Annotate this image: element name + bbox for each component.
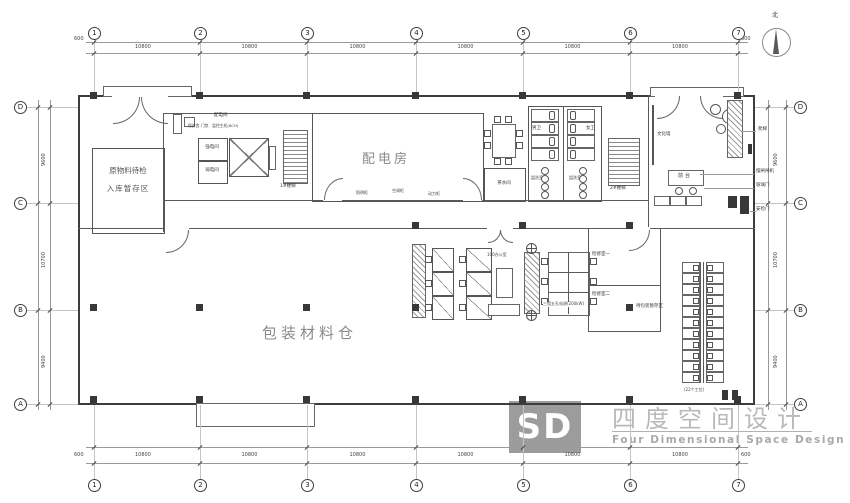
toilet-icon (549, 124, 555, 133)
column (196, 92, 203, 99)
workstation-cell (706, 328, 724, 339)
ac-cabinet-label: 空调柜 (392, 189, 404, 194)
workstation-cell (682, 295, 700, 306)
door-swing (166, 230, 189, 253)
grid-line (755, 404, 794, 405)
dimension-value: 600 (741, 452, 751, 458)
column (519, 92, 526, 99)
culture-wall (652, 105, 654, 165)
workstation-divider (703, 262, 704, 383)
chair-icon (707, 287, 713, 293)
grid-bubble: D (14, 101, 27, 114)
fan-icon (526, 310, 537, 321)
column (303, 92, 310, 99)
raw-material-label-2: 入库暂存区 (99, 184, 157, 193)
chair-icon (459, 280, 466, 287)
security-door-frame (740, 196, 749, 214)
dimension-value: 10800 (458, 44, 474, 50)
reserved-power-label: 三相五孔电源(200kW) (543, 302, 584, 307)
door-swing (629, 230, 650, 251)
washbasin-icon (541, 183, 549, 191)
stool-icon (689, 187, 697, 195)
grid-line (26, 404, 78, 405)
inspection-room-1-label: 检修室一 (592, 252, 610, 257)
column (90, 304, 97, 311)
grid-bubble: 1 (88, 27, 101, 40)
washbasin-icon (579, 183, 587, 191)
grid-line (630, 39, 631, 95)
door-swing (657, 96, 680, 119)
chair-icon (693, 309, 699, 315)
chair-icon (590, 278, 597, 285)
stair-1 (283, 130, 308, 184)
toilet-icon (570, 137, 576, 146)
workstation-cell (706, 350, 724, 361)
studio-logo: SD (509, 401, 581, 453)
turnstile-unit (686, 196, 702, 206)
chair-icon (693, 276, 699, 282)
turnstile-unit (670, 196, 686, 206)
grid-line (523, 405, 524, 479)
grid-line (200, 405, 201, 479)
tea-room-label: 茶水间 (484, 181, 524, 186)
dimension-value: 10800 (135, 452, 151, 458)
turnstile-unit (654, 196, 670, 206)
office-label: 100办公室 (487, 253, 507, 258)
chair-icon (425, 280, 432, 287)
fan-icon (526, 243, 537, 254)
column (196, 304, 203, 311)
equipment-cabinet (173, 114, 182, 134)
toilet-icon (570, 111, 576, 120)
wall (588, 331, 660, 332)
grid-bubble: 6 (624, 479, 637, 492)
dimension-value: 600 (74, 452, 84, 458)
chair-icon (707, 309, 713, 315)
chair-icon (693, 298, 699, 304)
column (412, 222, 419, 229)
column (196, 396, 203, 403)
column (90, 92, 97, 99)
chair-icon (693, 287, 699, 293)
chair-icon (693, 364, 699, 370)
dimension-value: 9400 (41, 344, 47, 368)
dimension-value: 9400 (773, 344, 779, 368)
chair-icon (484, 142, 491, 149)
grid-line (94, 405, 95, 479)
wall-device (748, 144, 752, 154)
ladder-label: 爬梯 (758, 127, 767, 132)
chair-icon (494, 158, 501, 165)
toilet-icon (549, 111, 555, 120)
grid-line (26, 107, 78, 108)
chair-icon (516, 130, 523, 137)
cabinet (466, 272, 492, 296)
washbasin-icon (579, 167, 587, 175)
dimension-value: 10800 (458, 452, 474, 458)
chair-icon (693, 320, 699, 326)
workstation-cell (706, 262, 724, 273)
door-swing (488, 230, 501, 243)
column (734, 396, 741, 403)
chair-icon (541, 258, 548, 265)
column (90, 396, 97, 403)
chair-icon (590, 258, 597, 265)
dimension-line (38, 100, 39, 410)
wall (563, 106, 564, 200)
workstation-cell (682, 262, 700, 273)
grid-bubble: 2 (194, 27, 207, 40)
power-cabinet-label: 动力柜 (428, 192, 440, 197)
wall (753, 95, 755, 405)
chair-icon (516, 142, 523, 149)
column (412, 396, 419, 403)
grid-line (755, 107, 794, 108)
workstation-cell (706, 273, 724, 284)
stair-2 (608, 138, 640, 186)
workstation-count-label: (22个工位) (684, 388, 704, 393)
grid-line (94, 39, 95, 95)
column (626, 92, 633, 99)
reception-desk-label: 前台 (668, 173, 702, 179)
workstation-cell (682, 372, 700, 383)
door-swing (113, 97, 140, 124)
security-door-label: 安检门 (756, 207, 770, 212)
workstation-cell (682, 339, 700, 350)
dimension-line (768, 100, 769, 410)
toilet-icon (570, 150, 576, 159)
washbasin-icon (541, 167, 549, 175)
workstation-cell (706, 306, 724, 317)
dimension-value: 10800 (242, 452, 258, 458)
lobby-stool (716, 124, 726, 134)
grid-line (630, 405, 631, 479)
grid-bubble: 7 (732, 479, 745, 492)
grid-bubble: 3 (301, 479, 314, 492)
chair-icon (693, 342, 699, 348)
dimension-value: 10800 (565, 452, 581, 458)
wall (660, 228, 661, 332)
grid-bubble: 7 (732, 27, 745, 40)
column (412, 304, 419, 311)
packing-buffer-label: 待包装暂存区 (636, 304, 663, 309)
grid-line (26, 310, 78, 311)
grid-bubble: 6 (624, 27, 637, 40)
toilet-icon (570, 124, 576, 133)
elevator-door (269, 146, 276, 170)
distribution-bay-label: 配电间 (214, 113, 228, 118)
dimension-value: 10700 (41, 244, 47, 268)
chair-icon (425, 256, 432, 263)
dimension-value: 600 (74, 36, 84, 42)
grid-bubble: 5 (517, 479, 530, 492)
elevator-shaft (229, 138, 269, 177)
lobby-table (710, 104, 721, 115)
strong-electric-label: 强电间 (198, 145, 226, 150)
grid-bubble: 4 (410, 479, 423, 492)
column (626, 222, 633, 229)
grid-line (755, 203, 794, 204)
chair-icon (707, 298, 713, 304)
workstation-cell (706, 295, 724, 306)
chair-icon (693, 265, 699, 271)
grid-bubble: C (794, 197, 807, 210)
workstation-cell (682, 328, 700, 339)
glass-door-label: 玻璃门 (756, 183, 770, 188)
raw-material-label-1: 原物料待检 (99, 166, 157, 175)
workstation-cell (706, 317, 724, 328)
workstation-cell (682, 317, 700, 328)
washbasin-icon (579, 191, 587, 199)
grid-bubble: 1 (88, 479, 101, 492)
column (412, 92, 419, 99)
chair-icon (459, 304, 466, 311)
wall (163, 113, 312, 114)
wall (588, 228, 589, 332)
grid-line (26, 203, 78, 204)
grid-bubble: 2 (194, 479, 207, 492)
grid-line (755, 310, 794, 311)
dimension-value: 10800 (350, 452, 366, 458)
workstation-cell (706, 339, 724, 350)
chair-icon (707, 331, 713, 337)
chair-icon (459, 256, 466, 263)
dimension-line (786, 100, 787, 410)
grid-line (523, 39, 524, 95)
dimension-value: 10800 (350, 44, 366, 50)
culture-wall-label: 文化墙 (657, 132, 671, 137)
chair-icon (707, 320, 713, 326)
sofa (496, 268, 513, 298)
grid-bubble: B (794, 304, 807, 317)
inspection-room-2-label: 检修室二 (592, 292, 610, 297)
chair-icon (484, 130, 491, 137)
bench (488, 304, 520, 316)
lighting-cabinet-label: 照明柜 (356, 191, 368, 196)
chair-icon (425, 304, 432, 311)
dimension-value: 10800 (135, 44, 151, 50)
grid-bubble: A (14, 398, 27, 411)
grid-line (200, 39, 201, 95)
workstation-cell (682, 350, 700, 361)
door-swing (141, 97, 168, 124)
workstation-cell (682, 306, 700, 317)
leader-line (704, 188, 754, 189)
door-swing (500, 230, 513, 243)
north-label: 北 (772, 12, 778, 19)
studio-name-en: Four Dimensional Space Design (612, 434, 845, 446)
workstation-cell (706, 372, 724, 383)
door-frame (722, 390, 728, 400)
dimension-value: 10800 (565, 44, 581, 50)
dimension-value: 10800 (672, 452, 688, 458)
chair-icon (541, 278, 548, 285)
chair-icon (707, 276, 713, 282)
workstation-cell (682, 361, 700, 372)
chair-icon (693, 353, 699, 359)
grid-bubble: C (14, 197, 27, 210)
leader-line (700, 174, 754, 175)
chair-icon (505, 158, 512, 165)
grid-bubble: B (14, 304, 27, 317)
chair-icon (505, 116, 512, 123)
meeting-table (492, 124, 516, 158)
grid-line (416, 39, 417, 95)
workstation-cell (706, 361, 724, 372)
weak-electric-label: 弱电间 (198, 168, 226, 173)
toilet-icon (549, 137, 555, 146)
packing-warehouse-label: 包装材料仓 (262, 322, 357, 343)
dimension-line (50, 100, 51, 410)
grid-bubble: A (794, 398, 807, 411)
chair-icon (693, 375, 699, 381)
compass-needle-icon (773, 29, 779, 54)
grid-line (738, 39, 739, 95)
stool-icon (675, 187, 683, 195)
column (519, 222, 526, 229)
stair-2-label: 2#楼梯 (610, 186, 626, 191)
wall (588, 285, 660, 286)
dimension-value: 9600 (773, 142, 779, 166)
stair-1-label: 1#楼梯 (280, 184, 296, 189)
dimension-value: 10800 (242, 44, 258, 50)
chair-icon (693, 331, 699, 337)
wall (78, 95, 80, 405)
washbasin-icon (541, 175, 549, 183)
dimension-value: 10700 (773, 244, 779, 268)
distribution-room-label: 配电房 (362, 148, 410, 167)
grid-line (738, 405, 739, 479)
leader-line (742, 131, 756, 132)
dimension-value: 10800 (672, 44, 688, 50)
cabinet (432, 248, 454, 272)
wall (648, 95, 649, 228)
grid-bubble: D (794, 101, 807, 114)
chair-icon (707, 375, 713, 381)
floor-plan-sheet: SD 四度空间设计 Four Dimensional Space Design … (0, 0, 850, 503)
loading-dock (196, 403, 315, 427)
chair-icon (707, 364, 713, 370)
chair-icon (707, 265, 713, 271)
workstation-divider (700, 262, 701, 383)
watermark-divider (612, 431, 812, 432)
column (626, 396, 633, 403)
cabinet (432, 272, 454, 296)
grid-bubble: 5 (517, 27, 530, 40)
workstation-cell (682, 284, 700, 295)
toilet-icon (549, 150, 555, 159)
grid-line (416, 405, 417, 479)
column (303, 304, 310, 311)
cabinet (432, 296, 454, 320)
washbasin-icon (541, 191, 549, 199)
column (626, 304, 633, 311)
storage-rack (524, 252, 540, 314)
ladder-shaft (727, 100, 743, 158)
security-note-label: 保安舍-门禁、监控主机(8CH) (188, 124, 238, 129)
workstation-cell (706, 284, 724, 295)
washbasin-icon (579, 175, 587, 183)
grid-line (307, 405, 308, 479)
column (303, 396, 310, 403)
dimension-value: 9600 (41, 142, 47, 166)
chair-icon (707, 353, 713, 359)
column (519, 396, 526, 403)
grid-bubble: 4 (410, 27, 423, 40)
chair-icon (590, 298, 597, 305)
grid-bubble: 3 (301, 27, 314, 40)
chair-icon (494, 116, 501, 123)
column (734, 92, 741, 99)
grid-line (307, 39, 308, 95)
turnstile-label: 摆闸闸机 (756, 169, 774, 174)
chair-icon (707, 342, 713, 348)
workstation-cell (682, 273, 700, 284)
security-door-frame (728, 196, 737, 208)
